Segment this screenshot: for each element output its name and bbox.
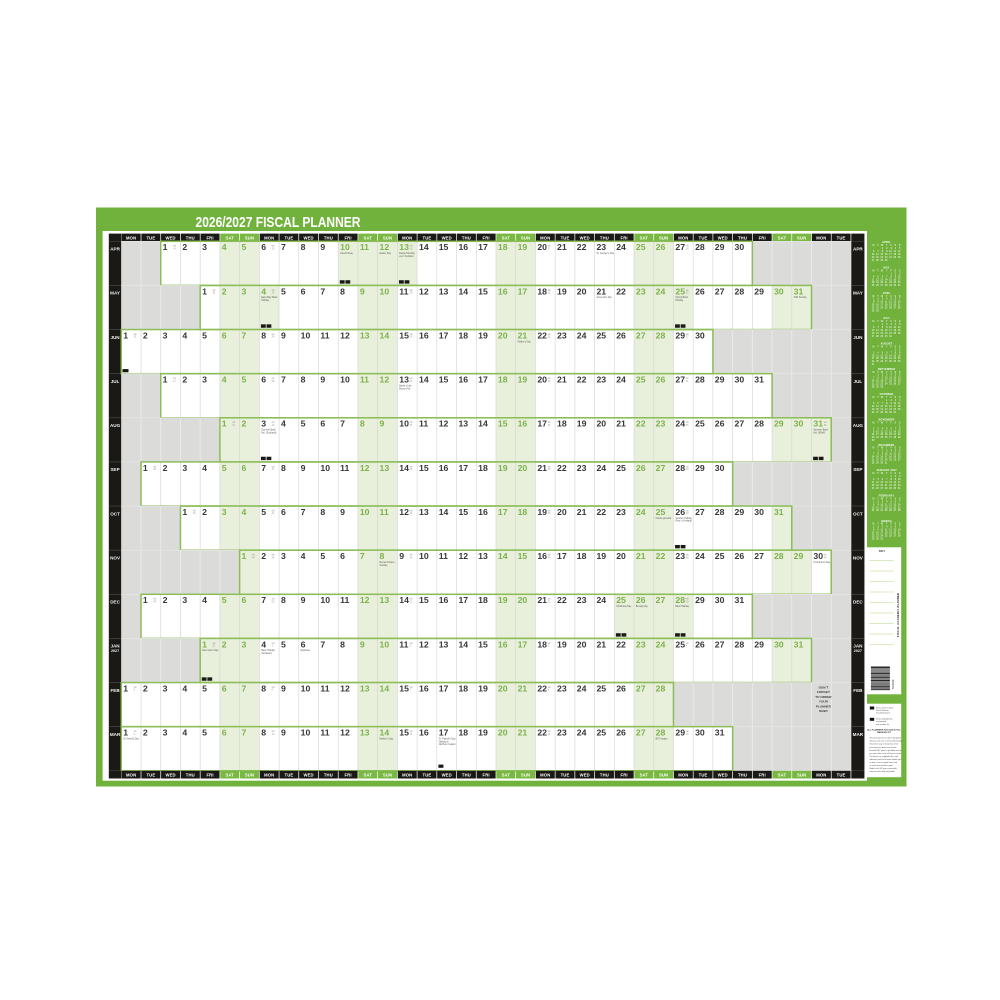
svg-text:26: 26: [656, 375, 666, 385]
svg-text:8: 8: [380, 551, 385, 561]
svg-text:TUE: TUE: [561, 235, 570, 240]
svg-text:23: 23: [656, 419, 666, 429]
svg-text:14: 14: [380, 728, 390, 738]
svg-text:24: 24: [616, 242, 626, 252]
svg-text:12: 12: [340, 728, 350, 738]
svg-text:A useful KEY panel is provided: A useful KEY panel is provided so that: [869, 749, 901, 752]
svg-text:29: 29: [774, 419, 784, 429]
svg-text:26: 26: [675, 507, 685, 517]
svg-text:22: 22: [537, 683, 547, 693]
svg-text:22: 22: [537, 728, 547, 738]
svg-text:15: 15: [478, 286, 488, 296]
svg-text:13: 13: [360, 330, 370, 340]
svg-text:12: 12: [419, 286, 429, 296]
svg-text:16: 16: [458, 375, 468, 385]
svg-text:SAT: SAT: [226, 235, 235, 240]
svg-text:SUN: SUN: [383, 773, 392, 778]
svg-text:SUN: SUN: [521, 235, 530, 240]
svg-text:23: 23: [675, 551, 685, 561]
svg-text:4: 4: [182, 728, 187, 738]
svg-text:12: 12: [439, 419, 449, 429]
svg-text:9: 9: [281, 728, 286, 738]
svg-text:30: 30: [695, 728, 705, 738]
svg-text:FRI: FRI: [759, 773, 766, 778]
svg-text:26: 26: [735, 551, 745, 561]
svg-text:15: 15: [419, 595, 429, 605]
svg-text:TUE: TUE: [837, 773, 846, 778]
svg-text:20: 20: [498, 330, 508, 340]
svg-text:27: 27: [715, 286, 725, 296]
svg-text:19: 19: [498, 463, 508, 473]
svg-text:6: 6: [261, 242, 266, 252]
svg-text:16: 16: [478, 507, 488, 517]
svg-text:23: 23: [636, 639, 646, 649]
svg-text:TUE: TUE: [561, 773, 570, 778]
svg-text:21: 21: [636, 551, 646, 561]
svg-text:Good Friday: Good Friday: [340, 252, 353, 255]
svg-text:2: 2: [182, 242, 187, 252]
svg-text:20: 20: [577, 639, 587, 649]
svg-text:Summer Bank: Summer Bank: [261, 429, 276, 432]
svg-text:6: 6: [222, 330, 227, 340]
svg-text:Epiphany: Epiphany: [301, 650, 311, 652]
svg-text:18: 18: [498, 242, 508, 252]
svg-text:17: 17: [518, 639, 528, 649]
svg-text:27: 27: [636, 728, 646, 738]
svg-text:SAT: SAT: [640, 773, 649, 778]
svg-text:21: 21: [557, 242, 567, 252]
svg-text:5: 5: [202, 683, 207, 693]
svg-text:20: 20: [557, 507, 567, 517]
svg-text:21: 21: [518, 330, 528, 340]
svg-text:Holiday: Holiday: [675, 300, 684, 302]
svg-text:1: 1: [143, 595, 148, 605]
svg-text:Made in the UK from sustainabl: Made in the UK from sustainable: [869, 767, 896, 770]
svg-text:29: 29: [715, 242, 725, 252]
svg-text:24: 24: [596, 595, 606, 605]
svg-text:DEC: DEC: [110, 600, 120, 605]
svg-text:TUE: TUE: [837, 235, 846, 240]
svg-text:31: 31: [794, 639, 804, 649]
svg-text:Ascension Day: Ascension Day: [596, 296, 612, 299]
svg-text:5: 5: [320, 551, 325, 561]
svg-text:11: 11: [320, 683, 329, 693]
svg-text:29: 29: [754, 286, 764, 296]
svg-text:FRI: FRI: [483, 773, 490, 778]
svg-text:21: 21: [596, 639, 606, 649]
svg-text:3: 3: [163, 728, 168, 738]
svg-text:MON: MON: [540, 235, 550, 240]
svg-text:15: 15: [419, 463, 429, 473]
svg-text:29: 29: [754, 639, 764, 649]
svg-text:4: 4: [261, 639, 266, 649]
svg-text:M: M: [872, 396, 874, 399]
svg-text:TUE: TUE: [699, 773, 708, 778]
svg-text:5: 5: [222, 463, 227, 473]
svg-text:4: 4: [242, 507, 247, 517]
svg-text:9: 9: [360, 639, 365, 649]
svg-text:3: 3: [202, 375, 207, 385]
svg-text:JUL: JUL: [854, 379, 863, 384]
svg-text:28: 28: [735, 639, 745, 649]
svg-text:15: 15: [518, 551, 528, 561]
svg-text:SEP: SEP: [853, 467, 862, 472]
svg-text:SUN: SUN: [659, 235, 668, 240]
svg-text:8: 8: [340, 639, 345, 649]
svg-text:28: 28: [656, 683, 666, 693]
svg-text:2: 2: [163, 463, 168, 473]
svg-text:17: 17: [557, 551, 567, 561]
svg-text:12: 12: [340, 683, 350, 693]
svg-text:20: 20: [577, 286, 587, 296]
svg-text:1: 1: [242, 551, 247, 561]
svg-text:excl. Scotland: excl. Scotland: [399, 255, 414, 258]
svg-text:5: 5: [301, 419, 306, 429]
svg-text:your important dates and event: your important dates and events.: [869, 746, 897, 749]
svg-text:M: M: [872, 421, 874, 424]
svg-text:WED: WED: [580, 235, 590, 240]
svg-text:M: M: [872, 447, 874, 450]
svg-text:9: 9: [301, 463, 306, 473]
svg-text:23: 23: [557, 683, 567, 693]
svg-text:29: 29: [794, 551, 804, 561]
svg-text:FEB: FEB: [110, 688, 120, 693]
svg-text:AUG: AUG: [853, 423, 864, 428]
svg-text:Boyne (NI): Boyne (NI): [399, 388, 410, 390]
svg-text:27: 27: [675, 375, 685, 385]
svg-text:8: 8: [320, 507, 325, 517]
svg-text:13: 13: [360, 728, 370, 738]
svg-text:17: 17: [458, 595, 468, 605]
svg-text:JUN: JUN: [853, 335, 863, 340]
svg-text:8: 8: [301, 242, 306, 252]
svg-text:you can colour code all of you: you can colour code all of your entries.: [869, 752, 902, 755]
svg-text:10: 10: [360, 507, 370, 517]
svg-text:16: 16: [419, 683, 429, 693]
svg-text:2: 2: [143, 330, 148, 340]
svg-text:25: 25: [656, 507, 666, 517]
svg-text:19: 19: [518, 375, 528, 385]
svg-text:18: 18: [518, 507, 528, 517]
svg-text:22: 22: [616, 286, 626, 296]
svg-text:10: 10: [399, 419, 409, 429]
svg-text:4: 4: [182, 683, 187, 693]
svg-text:5: 5: [202, 330, 207, 340]
svg-text:13: 13: [380, 595, 390, 605]
svg-text:FEB: FEB: [853, 688, 863, 693]
svg-text:MON: MON: [126, 235, 136, 240]
svg-text:FRI: FRI: [483, 235, 490, 240]
svg-text:9: 9: [281, 683, 286, 693]
svg-text:20: 20: [498, 728, 508, 738]
svg-text:12: 12: [340, 330, 350, 340]
svg-text:the perfect way to keep track: the perfect way to keep track of all: [869, 743, 898, 746]
svg-text:2: 2: [143, 683, 148, 693]
svg-text:APR: APR: [110, 247, 120, 252]
svg-text:TUE: TUE: [699, 235, 708, 240]
svg-text:20: 20: [537, 375, 547, 385]
svg-text:FRI: FRI: [621, 235, 628, 240]
svg-text:2: 2: [163, 595, 168, 605]
svg-text:SAT: SAT: [364, 235, 373, 240]
svg-text:18: 18: [478, 595, 488, 605]
svg-text:2: 2: [182, 375, 187, 385]
svg-text:MON: MON: [264, 773, 274, 778]
svg-text:ALL PLANNERS INCLUDE A FULL: ALL PLANNERS INCLUDE A FULL: [867, 729, 901, 732]
svg-text:15: 15: [458, 507, 468, 517]
svg-text:9: 9: [380, 419, 385, 429]
svg-text:28: 28: [675, 595, 685, 605]
svg-text:11: 11: [340, 595, 349, 605]
svg-text:18: 18: [458, 330, 468, 340]
svg-text:30: 30: [794, 419, 804, 429]
svg-text:28: 28: [754, 419, 764, 429]
svg-text:27: 27: [754, 551, 764, 561]
svg-text:THU: THU: [738, 235, 747, 240]
svg-text:13: 13: [439, 286, 449, 296]
svg-text:JUL: JUL: [111, 379, 120, 384]
svg-text:21: 21: [616, 419, 626, 429]
svg-text:29: 29: [715, 375, 725, 385]
svg-text:6: 6: [242, 595, 247, 605]
svg-text:14: 14: [419, 242, 429, 252]
svg-text:25: 25: [695, 419, 705, 429]
svg-text:NOV: NOV: [853, 555, 864, 560]
svg-text:21: 21: [518, 728, 528, 738]
svg-text:12: 12: [419, 639, 429, 649]
svg-text:FRI: FRI: [621, 773, 628, 778]
svg-text:THU: THU: [462, 773, 471, 778]
svg-text:5018206: 5018206: [892, 679, 895, 689]
svg-text:14: 14: [498, 551, 508, 561]
svg-text:17: 17: [439, 683, 449, 693]
svg-text:10: 10: [340, 242, 350, 252]
svg-text:15: 15: [399, 683, 409, 693]
svg-text:Whit Sunday: Whit Sunday: [794, 296, 808, 299]
svg-text:30: 30: [754, 507, 764, 517]
svg-text:MON: MON: [678, 235, 688, 240]
svg-text:12: 12: [360, 463, 370, 473]
svg-text:26: 26: [636, 463, 646, 473]
svg-text:30: 30: [715, 463, 725, 473]
svg-text:18: 18: [478, 463, 488, 473]
svg-text:11: 11: [340, 463, 349, 473]
svg-text:4: 4: [182, 330, 187, 340]
svg-text:Spring Bank: Spring Bank: [675, 296, 688, 299]
svg-text:13: 13: [380, 463, 390, 473]
svg-text:TUE: TUE: [146, 235, 155, 240]
svg-text:26: 26: [656, 242, 666, 252]
svg-text:25: 25: [636, 242, 646, 252]
svg-text:28: 28: [656, 330, 666, 340]
svg-text:16: 16: [439, 595, 449, 605]
svg-text:30: 30: [774, 286, 784, 296]
svg-text:21: 21: [537, 595, 547, 605]
svg-text:3: 3: [163, 330, 168, 340]
svg-text:Northern Ireland: Northern Ireland: [439, 743, 456, 746]
svg-text:19: 19: [557, 639, 567, 649]
svg-text:SAT: SAT: [502, 773, 511, 778]
svg-text:SUN: SUN: [659, 773, 668, 778]
svg-text:20: 20: [537, 242, 547, 252]
svg-text:10: 10: [301, 683, 311, 693]
svg-text:6: 6: [301, 639, 306, 649]
svg-text:3: 3: [242, 286, 247, 296]
svg-text:10: 10: [340, 375, 350, 385]
svg-text:13: 13: [399, 242, 409, 252]
svg-text:26: 26: [695, 286, 705, 296]
svg-text:TUE: TUE: [423, 773, 432, 778]
svg-text:SUN: SUN: [797, 235, 806, 240]
svg-text:6: 6: [261, 375, 266, 385]
svg-text:31: 31: [735, 595, 745, 605]
svg-text:with you, the user, in mind an: with you, the user, in mind and provides: [869, 740, 902, 743]
svg-text:20: 20: [616, 551, 626, 561]
svg-text:13: 13: [478, 551, 488, 561]
svg-text:10: 10: [301, 728, 311, 738]
svg-text:28: 28: [774, 551, 784, 561]
svg-text:This year planner has been des: This year planner has been designed: [869, 737, 900, 740]
svg-text:11: 11: [380, 507, 389, 517]
svg-text:6: 6: [242, 463, 247, 473]
svg-text:14: 14: [399, 463, 409, 473]
svg-text:3: 3: [222, 507, 227, 517]
svg-text:28: 28: [695, 375, 705, 385]
svg-text:30: 30: [735, 242, 745, 252]
svg-text:Boxing Day: Boxing Day: [636, 606, 649, 608]
svg-text:13: 13: [419, 507, 429, 517]
svg-text:7: 7: [340, 419, 345, 429]
svg-text:19: 19: [478, 683, 488, 693]
svg-text:10: 10: [301, 330, 311, 340]
svg-text:23: 23: [596, 375, 606, 385]
svg-text:SAT: SAT: [640, 235, 649, 240]
svg-text:re-used time and time again.: re-used time and time again.: [869, 764, 893, 767]
svg-text:Battle of the: Battle of the: [399, 384, 412, 387]
svg-text:M: M: [872, 320, 874, 323]
svg-text:JUN: JUN: [110, 335, 120, 340]
svg-text:APR: APR: [853, 247, 863, 252]
svg-text:Clocks go back: Clocks go back: [656, 518, 672, 520]
svg-text:SUN: SUN: [521, 773, 530, 778]
svg-text:October Holiday: October Holiday: [675, 517, 692, 520]
svg-text:THU: THU: [186, 773, 195, 778]
svg-text:Easter Monday: Easter Monday: [399, 252, 415, 255]
svg-text:7: 7: [261, 595, 266, 605]
svg-text:19: 19: [518, 242, 528, 252]
svg-text:14: 14: [419, 375, 429, 385]
svg-text:SUN: SUN: [383, 235, 392, 240]
svg-text:MAY: MAY: [853, 291, 863, 296]
svg-text:2: 2: [143, 728, 148, 738]
svg-text:5: 5: [281, 286, 286, 296]
svg-text:14: 14: [439, 507, 449, 517]
svg-text:M: M: [872, 244, 874, 247]
svg-text:20: 20: [498, 683, 508, 693]
svg-text:14: 14: [380, 683, 390, 693]
svg-text:MON: MON: [126, 773, 136, 778]
svg-text:St Andrew’s Day: St Andrew’s Day: [813, 561, 831, 564]
svg-text:with marker kit: with marker kit: [876, 723, 889, 726]
svg-text:25: 25: [715, 551, 725, 561]
svg-text:WED: WED: [304, 235, 314, 240]
svg-text:25: 25: [616, 595, 626, 605]
svg-text:29: 29: [675, 330, 685, 340]
svg-text:25: 25: [596, 330, 606, 340]
svg-text:8: 8: [261, 330, 266, 340]
svg-text:3: 3: [261, 419, 266, 429]
svg-text:THU: THU: [600, 773, 609, 778]
svg-text:12: 12: [458, 551, 468, 561]
svg-text:FRI: FRI: [344, 773, 351, 778]
svg-text:SAT: SAT: [778, 235, 787, 240]
svg-text:31: 31: [774, 507, 784, 517]
svg-text:22: 22: [557, 463, 567, 473]
svg-text:31: 31: [813, 419, 823, 429]
svg-text:5: 5: [281, 639, 286, 649]
svg-text:NOW!: NOW!: [819, 709, 828, 713]
svg-text:Early May Bank: Early May Bank: [261, 296, 278, 299]
svg-text:15: 15: [478, 639, 488, 649]
svg-text:5: 5: [202, 728, 207, 738]
svg-text:St. Patrick’s Day: St. Patrick’s Day: [439, 737, 457, 740]
svg-text:22: 22: [577, 375, 587, 385]
svg-text:NOV: NOV: [110, 555, 121, 560]
svg-text:MON: MON: [816, 235, 826, 240]
svg-text:24: 24: [656, 286, 666, 296]
svg-text:FORGET: FORGET: [817, 690, 830, 694]
svg-text:16: 16: [458, 242, 468, 252]
svg-text:13: 13: [399, 375, 409, 385]
svg-text:14: 14: [380, 330, 390, 340]
svg-text:25: 25: [675, 286, 685, 296]
svg-text:14: 14: [399, 595, 409, 605]
svg-text:26: 26: [636, 595, 646, 605]
svg-text:MON: MON: [816, 773, 826, 778]
svg-text:WED: WED: [165, 235, 175, 240]
svg-text:MAR: MAR: [853, 732, 864, 737]
svg-text:18: 18: [537, 639, 547, 649]
svg-text:adhesive pad and a water solub: adhesive pad and a water soluble pen: [869, 758, 901, 761]
svg-text:THU: THU: [186, 235, 195, 240]
svg-text:JAN: JAN: [853, 644, 863, 649]
svg-text:9: 9: [320, 375, 325, 385]
svg-text:30: 30: [813, 551, 823, 561]
svg-text:18: 18: [458, 728, 468, 738]
svg-text:Sasco Year to View: Sasco Year to View: [876, 706, 894, 709]
svg-text:29: 29: [695, 595, 705, 605]
svg-text:31: 31: [715, 728, 725, 738]
svg-text:15: 15: [399, 330, 409, 340]
svg-text:7: 7: [281, 242, 286, 252]
svg-text:WED: WED: [718, 773, 728, 778]
svg-text:24: 24: [577, 728, 587, 738]
svg-text:12: 12: [380, 242, 390, 252]
svg-text:2: 2: [242, 419, 247, 429]
svg-text:MAY: MAY: [110, 291, 120, 296]
svg-text:15: 15: [498, 419, 508, 429]
svg-text:1: 1: [182, 507, 187, 517]
svg-text:M: M: [872, 472, 874, 475]
svg-text:30: 30: [715, 595, 725, 605]
svg-text:12: 12: [380, 375, 390, 385]
svg-text:16: 16: [498, 639, 508, 649]
svg-text:27: 27: [675, 242, 685, 252]
svg-text:8: 8: [340, 286, 345, 296]
svg-text:The planner is supplied with a: The planner is supplied with a self-: [869, 755, 898, 758]
svg-text:1: 1: [202, 286, 207, 296]
svg-text:TUE: TUE: [146, 773, 155, 778]
